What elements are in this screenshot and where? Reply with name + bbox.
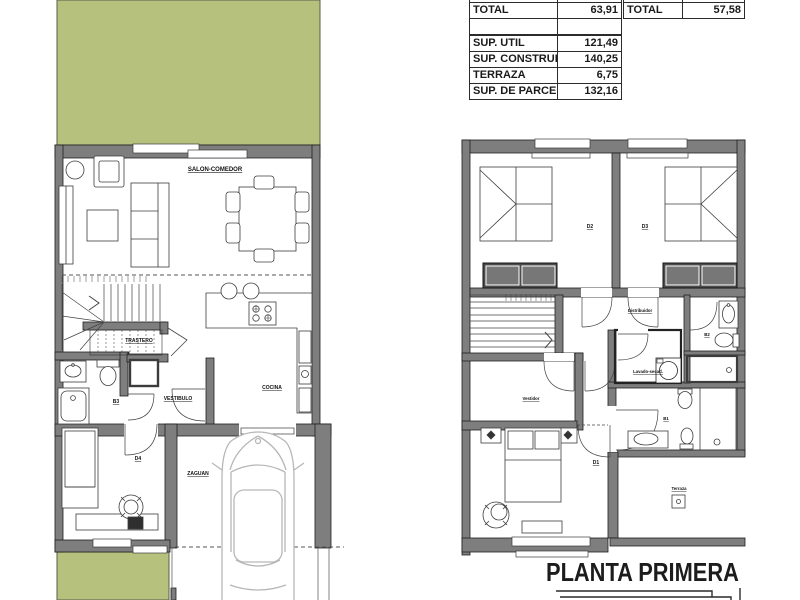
right-plan: D2 D3 Distribuidor B2 Lavado-secad. Vest… — [462, 139, 745, 557]
table-row: SUP. UTIL 121,49 — [469, 35, 623, 52]
room-label-vestibulo: VESTIBULO — [164, 396, 193, 402]
bedroom-beds — [480, 167, 737, 241]
room-label-b2: B2 — [704, 332, 710, 337]
room-label-b3: B3 — [113, 399, 120, 405]
car-top-view — [212, 432, 304, 600]
terrace-drain-icon — [672, 495, 685, 508]
area-table-right: TOTAL 57,58 — [623, 0, 746, 19]
room-label-b1: B1 — [663, 416, 669, 421]
sup-parcela-value: 132,16 — [557, 83, 622, 100]
table-row: TOTAL 63,91 — [469, 2, 623, 19]
sup-construida-value: 140,25 — [557, 51, 622, 68]
stairs-first-floor — [470, 294, 555, 348]
table-row: TERRAZA 6,75 — [469, 67, 623, 84]
sup-util-label: SUP. UTIL — [469, 35, 558, 52]
room-label-d1: D1 — [593, 460, 600, 466]
terraza-value: 6,75 — [557, 67, 622, 84]
sup-parcela-label: SUP. DE PARCELA — [469, 83, 558, 100]
bedroom-d1-furniture — [481, 428, 577, 533]
table-row: SUP. CONSTRUIDA 140,25 — [469, 51, 623, 68]
living-room-furniture — [59, 156, 309, 267]
table-row: SUP. DE PARCELA 132,16 — [469, 83, 623, 100]
room-label-zaguan: ZAGUAN — [187, 471, 209, 477]
sup-util-value: 121,49 — [557, 35, 622, 52]
room-label-lavado: Lavado-secad. — [633, 369, 663, 374]
sup-construida-label: SUP. CONSTRUIDA — [469, 51, 558, 68]
total-right-label: TOTAL — [623, 2, 683, 19]
room-label-salon: SALON-COMEDOR — [188, 167, 243, 173]
floorplan-drawing: SALON-COMEDOR TRASTERO B3 VESTIBULO COCI… — [0, 0, 800, 600]
room-label-d3: D3 — [642, 224, 649, 230]
room-label-d4: D4 — [135, 456, 142, 462]
bathroom-b1-fixtures — [628, 388, 736, 450]
bathroom-b3-fixtures — [58, 360, 158, 424]
plan-title: PLANTA PRIMERA — [546, 557, 739, 588]
room-d4-furniture — [62, 424, 158, 530]
title-underline — [556, 588, 740, 600]
room-label-terraza: Terraza — [672, 486, 688, 491]
table-row — [469, 18, 623, 35]
room-label-cocina: COCINA — [262, 385, 282, 391]
total-right-value: 57,58 — [682, 2, 745, 19]
total-label: TOTAL — [469, 2, 558, 19]
table-row: TOTAL 57,58 — [623, 2, 746, 19]
floorplan-sheet: SALON-COMEDOR TRASTERO B3 VESTIBULO COCI… — [0, 0, 800, 600]
room-label-distribuidor: Distribuidor — [628, 308, 653, 313]
wardrobes — [483, 263, 737, 288]
area-table-left: TOTAL 63,91 SUP. UTIL 121,49 SUP. CONSTR… — [469, 0, 623, 100]
kitchen-fixtures — [172, 283, 312, 421]
room-label-d2: D2 — [587, 224, 594, 230]
room-label-trastero: TRASTERO — [125, 338, 153, 344]
room-label-vestidor: Vestidor — [523, 396, 540, 401]
terraza-label: TERRAZA — [469, 67, 558, 84]
bathroom-b2-fixtures — [687, 301, 739, 382]
left-plan: SALON-COMEDOR TRASTERO B3 VESTIBULO COCI… — [55, 0, 344, 600]
total-value: 63,91 — [557, 2, 622, 19]
